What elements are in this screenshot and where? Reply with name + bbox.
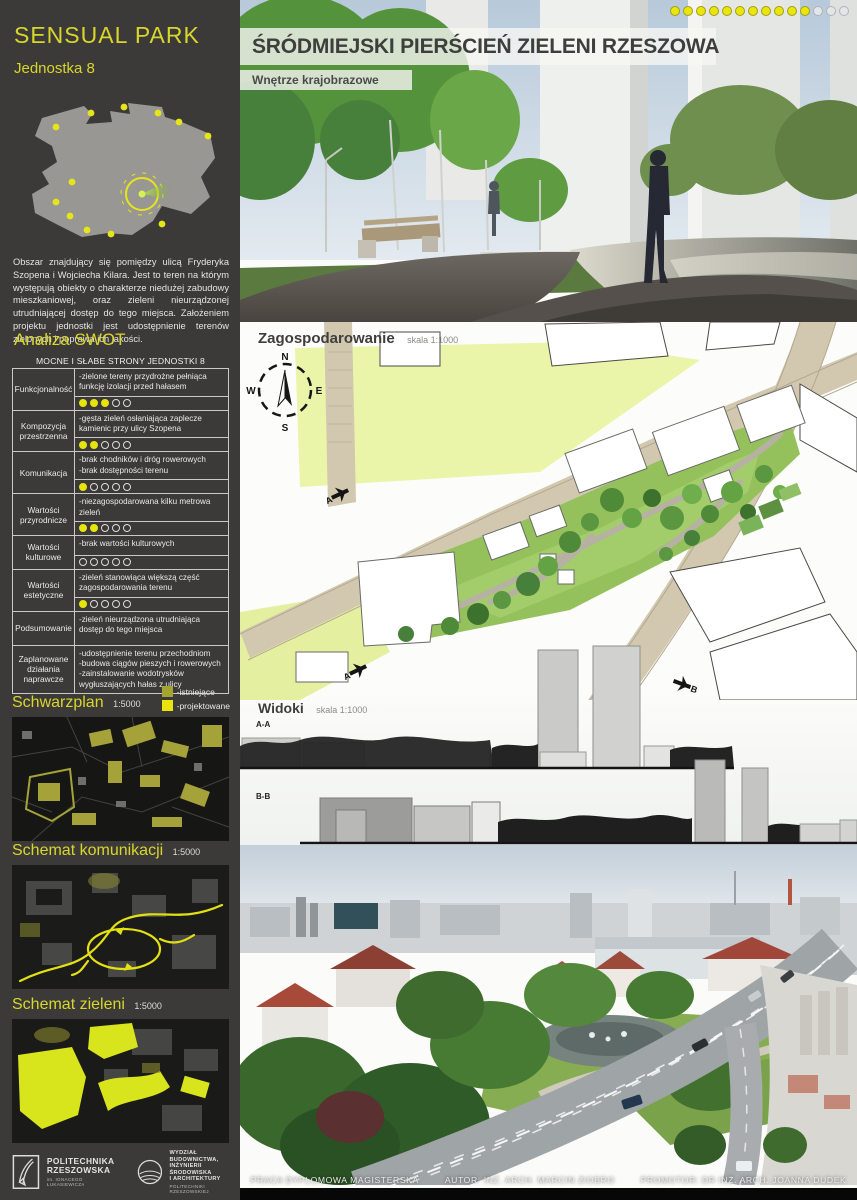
- progress-dot-icon: [683, 6, 693, 16]
- progress-dot-icon: [826, 6, 836, 16]
- schwarzplan-block: Schwarzplan 1:5000: [12, 694, 229, 846]
- rating-dot-icon: [123, 399, 131, 407]
- university-name: POLITECHNIKA RZESZOWSKA: [47, 1157, 117, 1177]
- university-subname: im. IGNACEGO ŁUKASIEWICZA: [47, 1177, 117, 1187]
- rating-dot-icon: [79, 483, 87, 491]
- progress-dot-icon: [722, 6, 732, 16]
- greenery-scheme-block: Schemat zieleni 1:5000: [12, 996, 229, 1148]
- rating-dot-icon: [112, 483, 120, 491]
- rating-dot-icon: [123, 558, 131, 566]
- park-render-photo: ŚRÓDMIEJSKI PIERŚCIEŃ ZIELENI RZESZOWA W…: [240, 0, 857, 322]
- svg-text:N: N: [281, 352, 288, 363]
- rating-dot-icon: [112, 558, 120, 566]
- politechnika-logo-icon: [12, 1153, 40, 1191]
- footer-credits: PRACA DYPLOMOWA MAGISTERSKA AUTOR: INŻ. …: [240, 1172, 857, 1188]
- swot-row: Wartości przyrodnicze-niezagospodarowana…: [13, 493, 228, 535]
- unit-subtitle: Jednostka 8: [14, 60, 95, 77]
- progress-dot-icon: [813, 6, 823, 16]
- bottom-black-strip: [240, 1188, 857, 1200]
- swot-rating: [75, 597, 228, 611]
- progress-dot-icon: [800, 6, 810, 16]
- faculty-logo-item: WYDZIAŁ BUDOWNICTWA, INŻYNIERII ŚRODOWIS…: [137, 1150, 240, 1194]
- rating-dot-icon: [101, 441, 109, 449]
- progress-dot-icon: [774, 6, 784, 16]
- masterplan-title: Zagospodarowanie: [258, 330, 395, 347]
- rating-dot-icon: [101, 524, 109, 532]
- board-title: ŚRÓDMIEJSKI PIERŚCIEŃ ZIELENI RZESZOWA: [240, 35, 719, 59]
- communication-scheme-scale: 1:5000: [173, 847, 201, 857]
- faculty-name: WYDZIAŁ BUDOWNICTWA, INŻYNIERII ŚRODOWIS…: [169, 1150, 240, 1183]
- swot-heading: Analiza SWOT: [14, 330, 125, 350]
- rating-dot-icon: [112, 600, 120, 608]
- swot-row-text: -brak wartości kulturowych: [75, 536, 228, 555]
- footer-promoter: PROMOTOR: DR INŻ. ARCH. JOANNA DUDEK: [641, 1175, 847, 1185]
- swot-row: Funkcjonalność-zielone tereny przydrożne…: [13, 369, 228, 410]
- svg-text:W: W: [246, 386, 256, 397]
- swot-row-text: -gęsta zieleń osłaniająca zaplecze kamie…: [75, 411, 228, 438]
- views-heading: Widoki skala 1:1000: [258, 700, 367, 718]
- rating-dot-icon: [101, 399, 109, 407]
- swot-rating: [75, 521, 228, 535]
- rating-dot-icon: [90, 399, 98, 407]
- subtitle-band: Wnętrze krajobrazowe: [240, 70, 412, 90]
- project-title: SENSUAL PARK: [14, 22, 200, 49]
- section-a-label: A-A: [256, 720, 270, 729]
- swot-rating: [75, 396, 228, 410]
- swot-table: Funkcjonalność-zielone tereny przydrożne…: [12, 368, 229, 694]
- rating-dot-icon: [101, 558, 109, 566]
- swot-row: Wartości estetyczne-zieleń stanowiąca wi…: [13, 569, 228, 611]
- swot-row-label: Podsumowanie: [13, 612, 75, 645]
- rating-dot-icon: [90, 441, 98, 449]
- unit-locator-map: [12, 84, 228, 252]
- progress-dot-icon: [709, 6, 719, 16]
- views-title: Widoki: [258, 700, 304, 716]
- progress-dot-icon: [670, 6, 680, 16]
- swot-row-label: Wartości estetyczne: [13, 570, 75, 611]
- footer-thesis-type: PRACA DYPLOMOWA MAGISTERSKA: [251, 1175, 419, 1185]
- progress-dots: [670, 6, 849, 16]
- rating-dot-icon: [90, 600, 98, 608]
- faculty-logo-icon: [137, 1158, 163, 1186]
- swot-rating: [75, 437, 228, 451]
- views-scale: skala 1:1000: [316, 705, 367, 715]
- swot-row-label: Kompozycja przestrzenna: [13, 411, 75, 452]
- svg-text:S: S: [282, 423, 289, 434]
- swot-row-label: Zaplanowane działania naprawcze: [13, 646, 75, 693]
- rating-dot-icon: [79, 441, 87, 449]
- swot-row-text: -zieleń nieurządzona utrudniająca dostęp…: [75, 612, 228, 645]
- rating-dot-icon: [101, 483, 109, 491]
- swot-row-text: -brak chodników i dróg rowerowych -brak …: [75, 452, 228, 479]
- rating-dot-icon: [79, 600, 87, 608]
- rating-dot-icon: [101, 600, 109, 608]
- swot-row-label: Wartości przyrodnicze: [13, 494, 75, 535]
- schwarzplan-title: Schwarzplan: [12, 694, 104, 711]
- rating-dot-icon: [123, 524, 131, 532]
- sections-overlay: [240, 610, 857, 845]
- university-logo-item: POLITECHNIKA RZESZOWSKA im. IGNACEGO ŁUK…: [12, 1153, 117, 1191]
- rating-dot-icon: [90, 483, 98, 491]
- greenery-scheme-title: Schemat zieleni: [12, 996, 125, 1013]
- rating-dot-icon: [123, 441, 131, 449]
- progress-dot-icon: [696, 6, 706, 16]
- swot-row-label: Wartości kulturowe: [13, 536, 75, 569]
- city-ring-shape: [32, 103, 215, 237]
- rating-dot-icon: [79, 399, 87, 407]
- greenery-scheme-map: [12, 1019, 229, 1143]
- rating-dot-icon: [90, 524, 98, 532]
- aerial-city-photo: [240, 845, 857, 1185]
- swot-row: Podsumowanie-zieleń nieurządzona utrudni…: [13, 611, 228, 645]
- section-b-label: B-B: [256, 792, 270, 801]
- poster-board: SENSUAL PARK Jednostka 8: [0, 0, 857, 1200]
- rating-dot-icon: [79, 524, 87, 532]
- title-band: ŚRÓDMIEJSKI PIERŚCIEŃ ZIELENI RZESZOWA: [240, 28, 716, 65]
- swot-row-label: Komunikacja: [13, 452, 75, 493]
- schwarzplan-map: [12, 717, 229, 841]
- swot-row-label: Funkcjonalność: [13, 369, 75, 410]
- rating-dot-icon: [112, 441, 120, 449]
- swot-row: Kompozycja przestrzenna-gęsta zieleń osł…: [13, 410, 228, 452]
- swot-rating: [75, 479, 228, 493]
- main-column: ŚRÓDMIEJSKI PIERŚCIEŃ ZIELENI RZESZOWA W…: [240, 0, 857, 1200]
- progress-dot-icon: [748, 6, 758, 16]
- rating-dot-icon: [79, 558, 87, 566]
- greenery-scheme-scale: 1:5000: [134, 1001, 162, 1011]
- swot-row: Wartości kulturowe-brak wartości kulturo…: [13, 535, 228, 569]
- masterplan-scale: skala 1:1000: [407, 335, 458, 345]
- progress-dot-icon: [839, 6, 849, 16]
- communication-scheme-map: [12, 865, 229, 989]
- progress-dot-icon: [761, 6, 771, 16]
- swot-row-text: -zielone tereny przydrożne pełniąca funk…: [75, 369, 228, 396]
- progress-dot-icon: [735, 6, 745, 16]
- swot-rating: [75, 555, 228, 569]
- sidebar: SENSUAL PARK Jednostka 8: [0, 0, 240, 1200]
- masterplan-heading: Zagospodarowanie skala 1:1000: [258, 330, 458, 348]
- rating-dot-icon: [112, 399, 120, 407]
- rating-dot-icon: [123, 483, 131, 491]
- board-subtitle: Wnętrze krajobrazowe: [240, 73, 379, 87]
- communication-scheme-block: Schemat komunikacji 1:5000: [12, 842, 229, 994]
- rating-dot-icon: [123, 600, 131, 608]
- swot-row-text: -niezagospodarowana kilku metrowa zieleń: [75, 494, 228, 521]
- communication-scheme-title: Schemat komunikacji: [12, 842, 163, 859]
- rating-dot-icon: [90, 558, 98, 566]
- swot-row-text: -zieleń stanowiąca większą część zagospo…: [75, 570, 228, 597]
- schwarzplan-scale: 1:5000: [113, 699, 141, 709]
- swot-table-title: MOCNE I SŁABE STRONY JEDNOSTKI 8: [12, 356, 229, 368]
- faculty-subname: POLITECHNIKI RZESZOWSKIEJ: [169, 1184, 240, 1194]
- swot-section: MOCNE I SŁABE STRONY JEDNOSTKI 8 Funkcjo…: [12, 356, 229, 694]
- masterplan-block: Zagospodarowanie skala 1:1000: [240, 322, 857, 845]
- footer-author: AUTOR: INŻ. ARCH. MARCIN ZIOBRO: [445, 1175, 615, 1185]
- svg-text:E: E: [316, 386, 323, 397]
- institution-logos: POLITECHNIKA RZESZOWSKA im. IGNACEGO ŁUK…: [12, 1150, 240, 1194]
- progress-dot-icon: [787, 6, 797, 16]
- swot-row: Komunikacja-brak chodników i dróg rowero…: [13, 451, 228, 493]
- rating-dot-icon: [112, 524, 120, 532]
